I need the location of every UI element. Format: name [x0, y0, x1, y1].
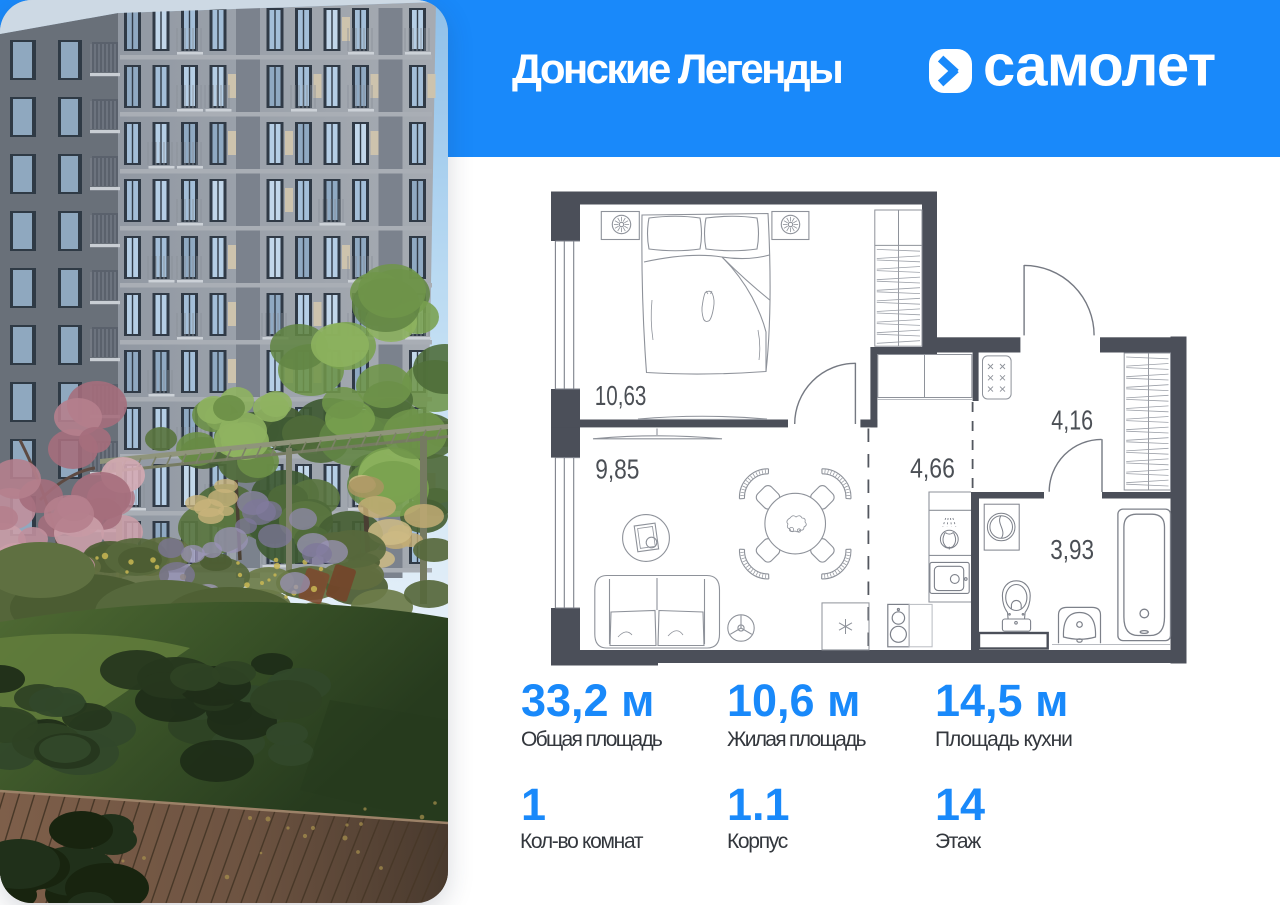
svg-text:4,66: 4,66 [910, 453, 955, 484]
svg-text:9,85: 9,85 [595, 453, 639, 484]
svg-text:4,16: 4,16 [1051, 405, 1093, 436]
svg-text:10,63: 10,63 [595, 380, 647, 411]
svg-text:3,93: 3,93 [1050, 534, 1094, 565]
